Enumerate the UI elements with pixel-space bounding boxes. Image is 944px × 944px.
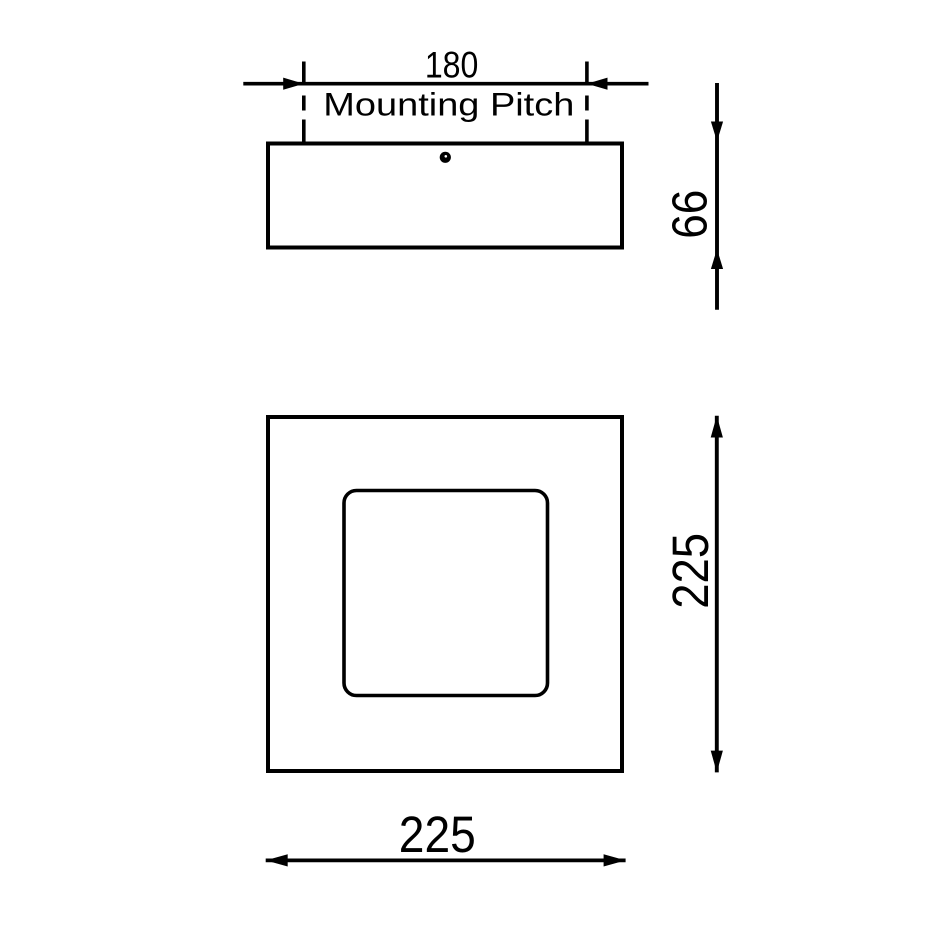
svg-text:225: 225 xyxy=(399,805,476,863)
svg-text:180: 180 xyxy=(425,45,479,86)
svg-text:66: 66 xyxy=(664,190,718,239)
svg-text:225: 225 xyxy=(661,533,719,609)
svg-text:Mounting Pitch: Mounting Pitch xyxy=(323,86,574,122)
